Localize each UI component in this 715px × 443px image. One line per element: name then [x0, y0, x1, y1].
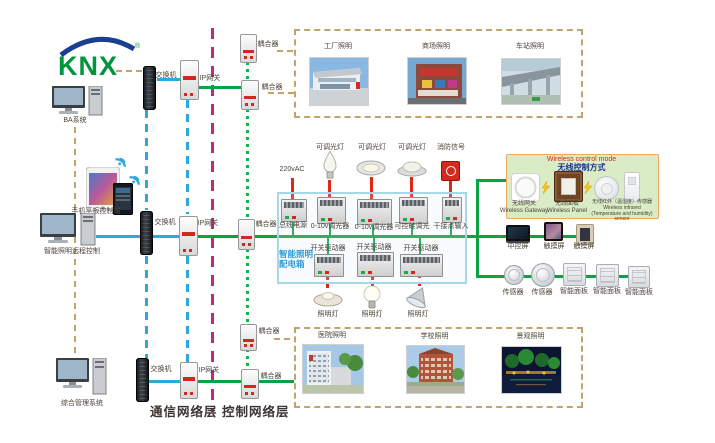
- smart-panel-label: 智能面板: [621, 289, 657, 297]
- smart-panel-label: 智能面板: [589, 288, 625, 296]
- load-label: 可调光灯: [355, 144, 389, 152]
- lamp-label: 照明灯: [403, 311, 433, 319]
- lightning-icon: [540, 181, 552, 194]
- switch-device: [136, 358, 149, 402]
- smart-panel-icon: [628, 266, 650, 288]
- lan-line: [145, 256, 148, 358]
- knx-logo: KNX ®: [56, 34, 144, 80]
- lan-line: [186, 256, 189, 362]
- bus-link: [197, 86, 241, 89]
- smart-panel-icon: [596, 264, 619, 287]
- sensor-label: 传感器: [528, 289, 556, 297]
- saucer-lamp-icon: [313, 288, 343, 308]
- switch-label: 交换机: [147, 366, 175, 374]
- bus-link: [196, 380, 241, 383]
- lamp-label: 照明灯: [357, 311, 387, 319]
- screen-label: 触摸屏: [539, 243, 569, 251]
- lan-line: [186, 100, 189, 214]
- cone-lamp-icon: [404, 286, 432, 310]
- communication-layer-label: 通信网络层: [150, 401, 218, 420]
- touch-screen: [544, 222, 563, 241]
- device-label: 可控硅调光: [391, 223, 433, 231]
- wireless-gateway-zh: 无线网关: [512, 201, 536, 207]
- wireless-sensor-box-icon: [624, 172, 640, 202]
- sensor-label: 传感器: [499, 289, 527, 297]
- touch-screen: [576, 224, 594, 245]
- lan-line: [145, 110, 148, 210]
- photo-mall: [407, 57, 467, 105]
- wireless-gateway-icon: [511, 173, 540, 202]
- ip-gateway-label: IP网关: [194, 367, 224, 375]
- dimmer-module: [317, 197, 346, 224]
- backbone-line: [246, 62, 249, 79]
- gallery-label: 医院照明: [302, 332, 362, 340]
- wireless-device-label: 无线红外（温湿度）传感器 Wireless infrared (Temperat…: [588, 200, 656, 223]
- management-label: 综合管理系统: [40, 400, 124, 408]
- downlight-icon: [356, 158, 386, 178]
- aux-link: [277, 50, 294, 52]
- photo-landscape: [501, 346, 562, 394]
- gallery-label: 商场照明: [407, 43, 465, 51]
- backbone-line: [246, 349, 249, 368]
- knx-logo-text: KNX: [58, 51, 118, 80]
- switch-label: 交换机: [152, 72, 180, 80]
- wireless-device-label: 无线网关 Wireless Gateway: [498, 201, 550, 215]
- lamp-label: 照明灯: [313, 311, 343, 319]
- dimmer-module: [357, 199, 392, 225]
- control-screen: [506, 225, 530, 241]
- gallery-label: 工厂照明: [309, 43, 367, 51]
- wireless-panel-icon: [554, 171, 583, 202]
- coupler-label: 耦合器: [252, 221, 280, 229]
- fire-alarm-icon: [441, 161, 460, 181]
- switch-actuator-module: [400, 254, 443, 277]
- management-computer: [56, 358, 110, 398]
- ip-gateway-label: IP网关: [193, 220, 223, 228]
- wireless-panel-en: Wireless Panel: [547, 208, 587, 214]
- lan-link: [149, 380, 180, 383]
- photo-factory: [309, 57, 369, 106]
- fire-signal-label: 消防信号: [434, 144, 468, 152]
- switch-device: [140, 211, 153, 255]
- device-label: 开关驱动器: [306, 245, 350, 253]
- device-label: 开关驱动器: [352, 244, 396, 252]
- coupler-label: 耦合器: [255, 328, 283, 336]
- photo-school: [406, 345, 465, 394]
- wireless-sensor-round-icon: [594, 176, 619, 201]
- coupler-device: [241, 80, 259, 110]
- switch-label: 交换机: [151, 219, 179, 227]
- device-label: 开关驱动器: [399, 245, 443, 253]
- wireless-device-label: 无线面板 Wireless Panel: [544, 201, 590, 215]
- ba-computer: [52, 86, 106, 118]
- lan-link: [153, 235, 179, 238]
- ip-gateway-label: IP网关: [195, 75, 225, 83]
- coupler-label: 耦合器: [258, 84, 286, 92]
- screen-label: 中控屏: [503, 243, 533, 251]
- gallery-label: 景观照明: [501, 333, 560, 341]
- bulb-lamp-icon: [363, 285, 381, 310]
- bus-branch: [476, 179, 479, 278]
- dry-contact-module: [442, 197, 462, 223]
- device-label: 干接点输入: [430, 223, 472, 231]
- remote-control-computer: [40, 213, 98, 248]
- gallery-label: 车站照明: [501, 43, 559, 51]
- ceiling-lamp-icon: [397, 158, 427, 178]
- device-label: 0-10v调光器: [305, 223, 355, 231]
- coupler-label: 耦合器: [257, 373, 285, 381]
- lightning-icon: [582, 181, 594, 194]
- gallery-label: 学校照明: [406, 333, 463, 341]
- bus-power-module: [281, 199, 307, 222]
- wireless-sensor-en: Wireless infrared (Temperature and humid…: [591, 205, 652, 223]
- wireless-gateway-en: Wireless Gateway: [500, 208, 548, 214]
- aux-link: [274, 338, 294, 340]
- power-input-label: 220vAC: [276, 166, 308, 174]
- load-label: 可调光灯: [395, 144, 429, 152]
- smart-panel-label: 智能面板: [556, 288, 592, 296]
- remote-control-label: 智能照明远程控制: [22, 248, 122, 256]
- switch-actuator-module: [357, 252, 394, 277]
- photo-hospital: [302, 344, 364, 394]
- candle-lamp-icon: [322, 151, 338, 180]
- photo-station: [501, 58, 561, 105]
- sensor-icon: [531, 263, 555, 287]
- switch-actuator-module: [314, 254, 344, 277]
- backbone-line: [246, 109, 249, 218]
- bus-link-wireless: [476, 179, 506, 182]
- wireless-panel-zh: 无线面板: [555, 201, 579, 207]
- svg-text:®: ®: [135, 42, 141, 50]
- screen-label: 触摸屏: [570, 243, 598, 251]
- lan-link: [96, 235, 140, 238]
- sensor-icon: [504, 265, 524, 285]
- thyristor-dimmer-module: [399, 197, 428, 224]
- knx-lighting-diagram: KNX ® BA系统 手机平板控制端 智能照明远程控制 综合管理系统 交换机 I…: [0, 0, 715, 443]
- aux-link: [268, 92, 294, 94]
- backbone-line: [246, 249, 249, 323]
- coupler-label: 耦合器: [254, 41, 282, 49]
- ba-computer-label: BA系统: [47, 117, 103, 125]
- control-layer-label: 控制网络层: [222, 401, 290, 420]
- smart-panel-icon: [563, 263, 586, 286]
